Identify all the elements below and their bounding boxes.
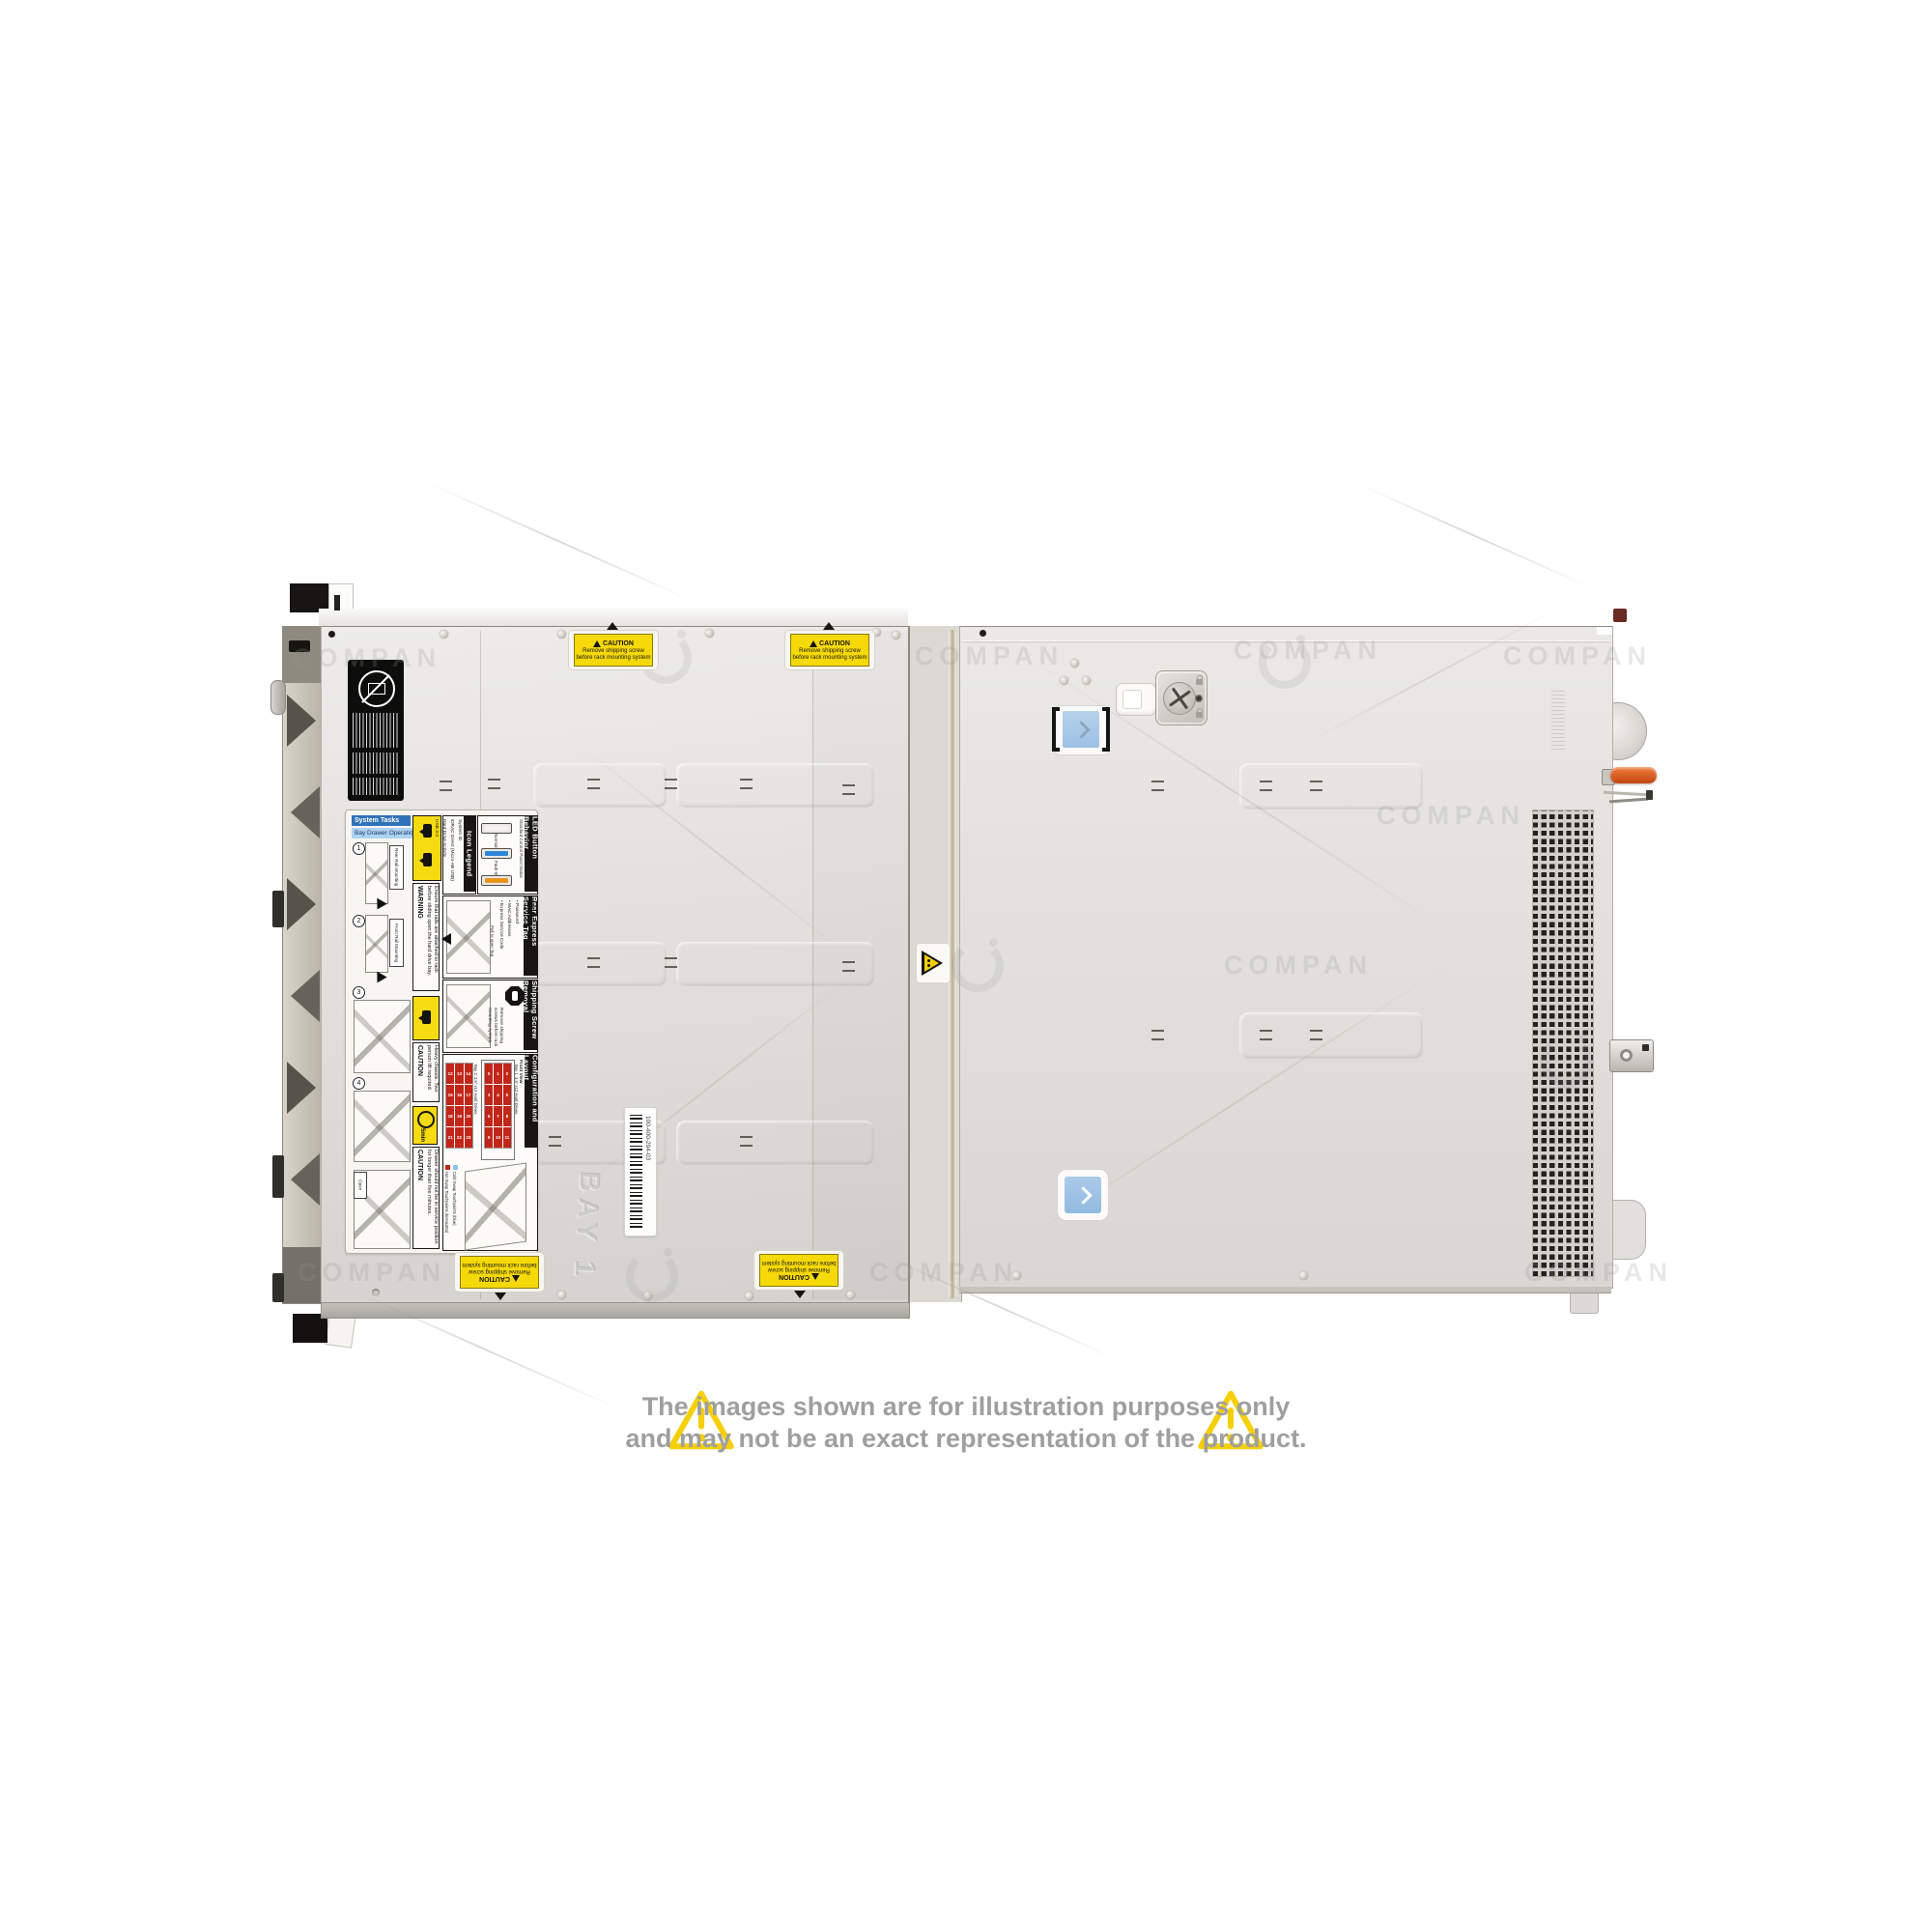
- warning-triangle-icon: [811, 1274, 819, 1281]
- security-lock: [1155, 670, 1207, 725]
- barcode-sticker: 100-400-294-03: [624, 1107, 657, 1236]
- list-cell: 15: [446, 1085, 454, 1105]
- cold-swap-touchpoint: [1057, 1169, 1109, 1221]
- caution-title: CAUTION: [819, 639, 850, 648]
- legend-hot-swatch: [445, 1165, 450, 1170]
- spring-latch: [1604, 790, 1654, 806]
- list-cell: 18: [446, 1106, 454, 1126]
- vent-slot: [1260, 781, 1272, 791]
- vent-slot: [665, 957, 677, 968]
- vent-slot: [1260, 1030, 1272, 1040]
- vent-slot: [440, 781, 452, 791]
- legend-hot-text: Hot Swap Touchpoints (terracotta): [444, 1172, 449, 1239]
- watermark-logo-icon: [626, 1250, 678, 1302]
- disclaimer-line2: and may not be an exact representation o…: [580, 1423, 1352, 1455]
- step-diagram: [365, 842, 388, 904]
- caution-title: CAUTION: [415, 1045, 424, 1099]
- features-title: Features:: [528, 900, 534, 922]
- configuration-layout-box: Configuration and Layout Front View 1213…: [442, 1054, 538, 1251]
- led-bar-blue: [481, 848, 512, 859]
- step-diagram: [354, 1091, 411, 1162]
- led-bar-fault: [481, 875, 512, 886]
- hazard-triangle-sticker: [916, 943, 951, 983]
- embossed-bay-label: BAY 1: [567, 1170, 606, 1283]
- five-minute-timer-label: 5min: [412, 1106, 438, 1145]
- led-header: LED Button Behavior: [525, 816, 537, 892]
- caution-sticker: CAUTION Remove shipping screw before rac…: [784, 624, 873, 668]
- watermark-text: COMPAN: [1377, 801, 1525, 831]
- handle-recess: [533, 763, 667, 808]
- list-cell: 9: [485, 1127, 493, 1148]
- tip-over-warning-icon: [358, 670, 395, 707]
- list-cell: 7: [494, 1106, 501, 1126]
- shipping-screw-removal-box: Shipping Screw Removal Remove shipping s…: [442, 980, 538, 1053]
- caution-line2: before rack mounting system: [761, 1260, 836, 1266]
- vent-slot: [1310, 781, 1322, 791]
- caution-text: Drawer should not be in service position…: [425, 1150, 439, 1246]
- bezel-tab: [272, 891, 284, 927]
- step-side-label: Front Rail Mounting: [389, 919, 404, 967]
- lock-dial-icon: [1163, 682, 1196, 715]
- release-lever-assembly: [1602, 764, 1662, 789]
- step-diagram: [365, 915, 388, 973]
- screw: [1082, 676, 1091, 685]
- caution-line2: before rack mounting system: [462, 1262, 536, 1268]
- list-cell: 1: [494, 1064, 501, 1084]
- bay-drawer-operation-header: Bay Drawer Operation: [352, 828, 418, 838]
- vent-slot: [842, 784, 855, 795]
- caution-line1: Remove shipping screw: [582, 648, 644, 655]
- watermark-logo-icon: [1541, 1036, 1593, 1088]
- regulatory-label: [348, 660, 404, 801]
- drive-latch-icon: [287, 695, 316, 747]
- lock-screw: [1195, 695, 1203, 702]
- chevron-right-icon: [1072, 721, 1090, 738]
- warning-triangle-icon: [810, 640, 817, 647]
- drive-latch-icon: [287, 1062, 316, 1114]
- corner-step: [1597, 627, 1612, 635]
- step-number: 2: [353, 915, 365, 927]
- config-header: Configuration and Layout: [525, 1055, 537, 1148]
- product-photo: COMPAN COMPAN COMPAN COMPAN COMPAN COMPA…: [0, 0, 1932, 1932]
- list-cell: 23: [465, 1127, 472, 1148]
- list-cell: Hard Drive Activity: [440, 819, 446, 857]
- list-cell: 20: [465, 1106, 472, 1126]
- caution-line1: Remove shipping screw: [469, 1268, 530, 1275]
- rear-express-service-tag-box: Rear Express Service Tag Pull to open Ta…: [442, 895, 538, 979]
- watermark-text: COMPAN: [1224, 951, 1373, 980]
- bay2-drive-grid: 121314151617181920212223: [445, 1063, 473, 1149]
- list-cell: 21: [446, 1127, 454, 1148]
- system-tasks-header: System Tasks: [352, 815, 411, 826]
- release-slider: [1116, 683, 1156, 716]
- locked-icon: [1196, 712, 1203, 718]
- list-cell: 8: [503, 1106, 511, 1126]
- timer-text: 5min: [419, 1128, 425, 1142]
- feature-item: • Express Service Code: [497, 900, 503, 949]
- watermark-text: COMPAN: [1503, 641, 1652, 671]
- rail-latch: [1609, 1039, 1654, 1072]
- list-cell: 11: [503, 1127, 511, 1148]
- bay1-drive-grid: 01234567891011: [484, 1063, 512, 1149]
- drive-latch-icon: [291, 970, 320, 1022]
- led-subtitle: Standard Control Panel Status: [519, 819, 524, 878]
- list-cell: 2: [503, 1064, 511, 1084]
- bezel-tab: [272, 1155, 284, 1198]
- list-cell: 12: [446, 1064, 454, 1084]
- caution-drawer-box: CAUTION Drawer should not be in service …: [412, 1147, 440, 1249]
- list-cell: 22: [455, 1127, 463, 1148]
- caution-heavy-box: CAUTION Heavy chassis. Two person lift r…: [412, 1042, 440, 1102]
- screw: [1060, 676, 1068, 685]
- led-button-behavior-box: LED Button Behavior Standard Control Pan…: [477, 815, 538, 895]
- warning-text: Ensure that rails are attached to rack b…: [425, 886, 439, 988]
- vent-slot: [1151, 1030, 1164, 1040]
- caution-sticker: CAUTION Remove shipping screw before rac…: [755, 1252, 844, 1296]
- step-number: 1: [353, 842, 365, 855]
- icon-legend-header: Icon Legend: [464, 816, 475, 892]
- cold-swap-touchpoint: [1052, 703, 1110, 755]
- step-side-label: Open: [354, 1172, 367, 1199]
- drawer-isometric-diagram: [465, 1163, 526, 1251]
- orange-lever: [1610, 767, 1657, 783]
- shipping-text: Remove shipping screws before rack mount…: [492, 1008, 503, 1048]
- caution-line2: before rack mounting system: [576, 655, 650, 662]
- front-bezel: [282, 626, 325, 1304]
- caution-line1: Remove shipping screw: [799, 648, 861, 655]
- warning-rails-box: WARNING Ensure that rails are attached t…: [412, 883, 440, 991]
- pull-tag-note: Pull to open Tag: [490, 925, 495, 956]
- icon-legend-box: Icon Legend System IDiDRAC Direct (Micro…: [442, 815, 476, 895]
- chassis-bulge: [1609, 1200, 1646, 1260]
- feature-item: • Service Tag: [521, 900, 526, 927]
- list-cell: USB 3.0: [433, 819, 439, 837]
- barcode-icon: [630, 1114, 642, 1228]
- list-cell: 4: [494, 1085, 501, 1105]
- vent-slot: [1310, 1030, 1322, 1040]
- list-cell: 19: [455, 1106, 463, 1126]
- bay1-caption: Bay 1: 3.5" x12 Hard Drives: [514, 1065, 519, 1115]
- bezel-knob: [270, 680, 286, 715]
- caution-title: CAUTION: [415, 1150, 424, 1246]
- pinch-hazard-label: [412, 996, 440, 1040]
- drive-latch-icon: [287, 878, 316, 930]
- feature-item: • MAC Addresses: [505, 900, 511, 936]
- list-cell: 3: [485, 1085, 493, 1105]
- vent-slot: [549, 1136, 561, 1147]
- drive-latch-icon: [291, 1153, 320, 1206]
- list-cell: 13: [455, 1064, 463, 1084]
- list-cell: iDRAC Direct (Micro-AB USB): [448, 819, 454, 881]
- caution-sticker: CAUTION Remove shipping screw before rac…: [456, 1254, 545, 1298]
- legend-cold-swatch: [453, 1165, 458, 1170]
- watermark-text: COMPAN: [298, 1258, 446, 1288]
- watermark-logo-icon: [1259, 637, 1311, 689]
- rack-ear-notch: [334, 595, 340, 611]
- watermark-text: COMPAN: [293, 643, 441, 673]
- caution-text: Heavy chassis. Two person lift required.: [425, 1045, 439, 1099]
- vent-slot: [587, 957, 600, 968]
- service-info-label: System Tasks Bay Drawer Operation 1 Rear…: [345, 810, 538, 1254]
- icon-legend-items: System IDiDRAC Direct (Micro-AB USB)Hard…: [445, 819, 462, 889]
- right-panel-bottom-lip: [959, 1287, 1611, 1293]
- list-cell: 14: [465, 1064, 472, 1084]
- disclaimer-banner: The images shown are for illustration pu…: [580, 1381, 1352, 1459]
- scratch-line: [1358, 483, 1588, 587]
- caution-line2: before rack mounting system: [792, 655, 867, 662]
- vent-slot: [587, 779, 600, 789]
- watermark-text: COMPAN: [1524, 1258, 1673, 1288]
- handle-recess: [676, 1121, 874, 1165]
- vent-slot: [842, 961, 855, 972]
- unlocked-icon: [1196, 679, 1203, 685]
- bay2-caption: Bay 2: 3.5" x12 Hard Drives: [473, 1065, 478, 1115]
- shipping-header: Shipping Screw Removal: [524, 980, 537, 1050]
- disclaimer-line1: The images shown are for illustration pu…: [580, 1391, 1352, 1423]
- clock-icon: [417, 1111, 435, 1128]
- warning-title: WARNING: [415, 886, 424, 988]
- service-tag-diagram: [446, 900, 491, 974]
- caution-sticker: CAUTION Remove shipping screw before rac…: [568, 624, 657, 668]
- vent-slot: [1151, 781, 1164, 791]
- bezel-tab: [272, 1273, 284, 1302]
- legend-cold-text: Cold Swap Touchpoints (blue): [452, 1172, 457, 1239]
- bracket-icon: [1052, 707, 1060, 752]
- list-cell: 6: [485, 1106, 493, 1126]
- watermark-logo-icon: [952, 940, 1004, 992]
- list-cell: 0: [485, 1064, 493, 1084]
- vent-slot: [740, 779, 753, 789]
- vent-slot: [488, 779, 500, 789]
- shipping-diagram: [446, 984, 491, 1048]
- caution-title: CAUTION: [479, 1275, 510, 1284]
- rear-express-features: Features: • Service Tag • Password • MAC…: [497, 900, 534, 972]
- watermark-text: COMPAN: [915, 641, 1064, 671]
- drive-latch-icon: [291, 786, 320, 838]
- chevron-right-icon: [1074, 1186, 1092, 1204]
- step-diagram: [354, 1000, 411, 1073]
- warning-triangle-icon: [593, 640, 601, 647]
- screw: [1070, 659, 1079, 668]
- step-number: 3: [353, 986, 365, 999]
- caution-title: CAUTION: [603, 639, 634, 648]
- caution-title: CAUTION: [779, 1273, 810, 1282]
- embossed-fine-print: [1551, 690, 1565, 750]
- vent-slot: [665, 779, 677, 789]
- vent-slot: [740, 1136, 753, 1147]
- chassis-tab: [1613, 609, 1627, 622]
- list-cell: 5: [503, 1085, 511, 1105]
- warning-triangle-icon: [512, 1276, 520, 1283]
- led-bar-normal: [481, 823, 512, 834]
- barcode-text: 100-400-294-03: [644, 1116, 651, 1160]
- stop-icon: [505, 986, 525, 1006]
- scratch-line: [428, 482, 694, 602]
- handle-recess: [533, 942, 667, 986]
- list-cell: System ID: [456, 819, 462, 840]
- list-cell: 10: [494, 1127, 501, 1148]
- caution-line1: Remove shipping screw: [768, 1266, 830, 1273]
- list-cell: 17: [465, 1085, 472, 1105]
- page: { "watermark": { "text": "COMPAN" }, "di…: [0, 0, 1932, 1932]
- feature-item: • Password: [513, 900, 519, 923]
- list-cell: 16: [455, 1085, 463, 1105]
- bracket-icon: [1102, 707, 1110, 752]
- step-side-label: Rear Rail Mounting: [389, 845, 404, 890]
- step-number: 4: [353, 1077, 365, 1090]
